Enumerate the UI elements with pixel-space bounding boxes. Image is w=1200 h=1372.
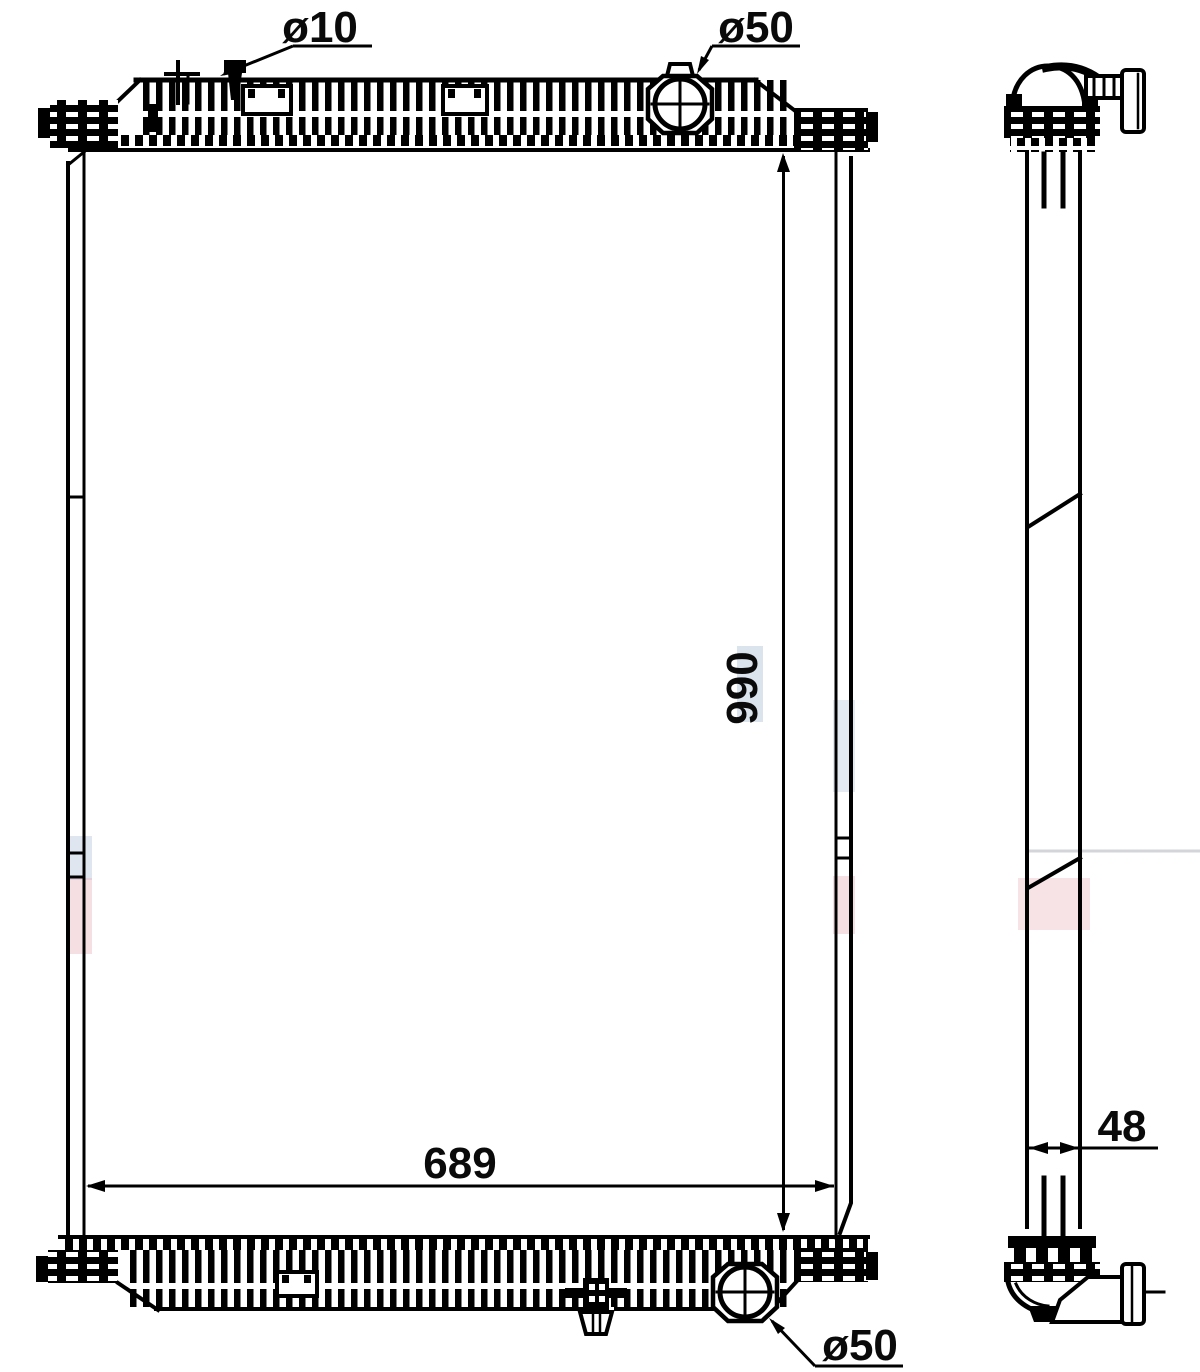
drawing-sheet: ø10 ø50 990 689 48 [0, 0, 1200, 1372]
dim-bottom-outlet: ø50 [769, 1318, 903, 1370]
dimensions: ø10 ø50 990 689 48 [86, 3, 1158, 1370]
dim-top-fitting: ø10 [220, 3, 372, 76]
technical-drawing-svg: ø10 ø50 990 689 48 [0, 0, 1200, 1372]
top-right-bracket [794, 108, 878, 150]
top-mount-slot-2 [443, 86, 487, 114]
side-top-tank [1004, 66, 1144, 152]
bottom-tank-ribs [125, 1250, 790, 1307]
watermark-remnants [66, 646, 1200, 954]
break-line-upper [1028, 494, 1080, 527]
dim-depth-label: 48 [1098, 1102, 1147, 1151]
top-left-post [148, 104, 158, 132]
dim-width: 689 [86, 1139, 834, 1192]
top-tank-teeth [76, 135, 866, 149]
bottom-outlet-boss [713, 1264, 777, 1321]
dim-top-inlet-label: ø50 [718, 3, 794, 52]
bottom-tank [36, 1237, 878, 1334]
top-tank [38, 60, 878, 150]
top-mount-slot-1 [243, 86, 291, 114]
dim-height-label: 990 [718, 651, 767, 724]
bottom-tank-teeth [62, 1238, 868, 1250]
bottom-left-bracket [36, 1250, 118, 1283]
side-bottom-tank [1004, 1236, 1164, 1324]
dim-top-fitting-label: ø10 [282, 3, 358, 52]
bottom-tank-channel [127, 1283, 787, 1289]
top-left-bracket [38, 100, 118, 148]
side-core [1027, 152, 1080, 1242]
dim-width-label: 689 [423, 1139, 496, 1188]
dim-bottom-outlet-label: ø50 [822, 1321, 898, 1370]
dim-depth: 48 [1028, 1102, 1158, 1154]
dim-top-inlet: ø50 [697, 3, 800, 74]
dim-height: 990 [718, 153, 790, 1232]
bottom-mount-slot [277, 1272, 317, 1296]
bottom-right-bracket [794, 1248, 878, 1282]
top-inlet-boss [648, 64, 712, 133]
